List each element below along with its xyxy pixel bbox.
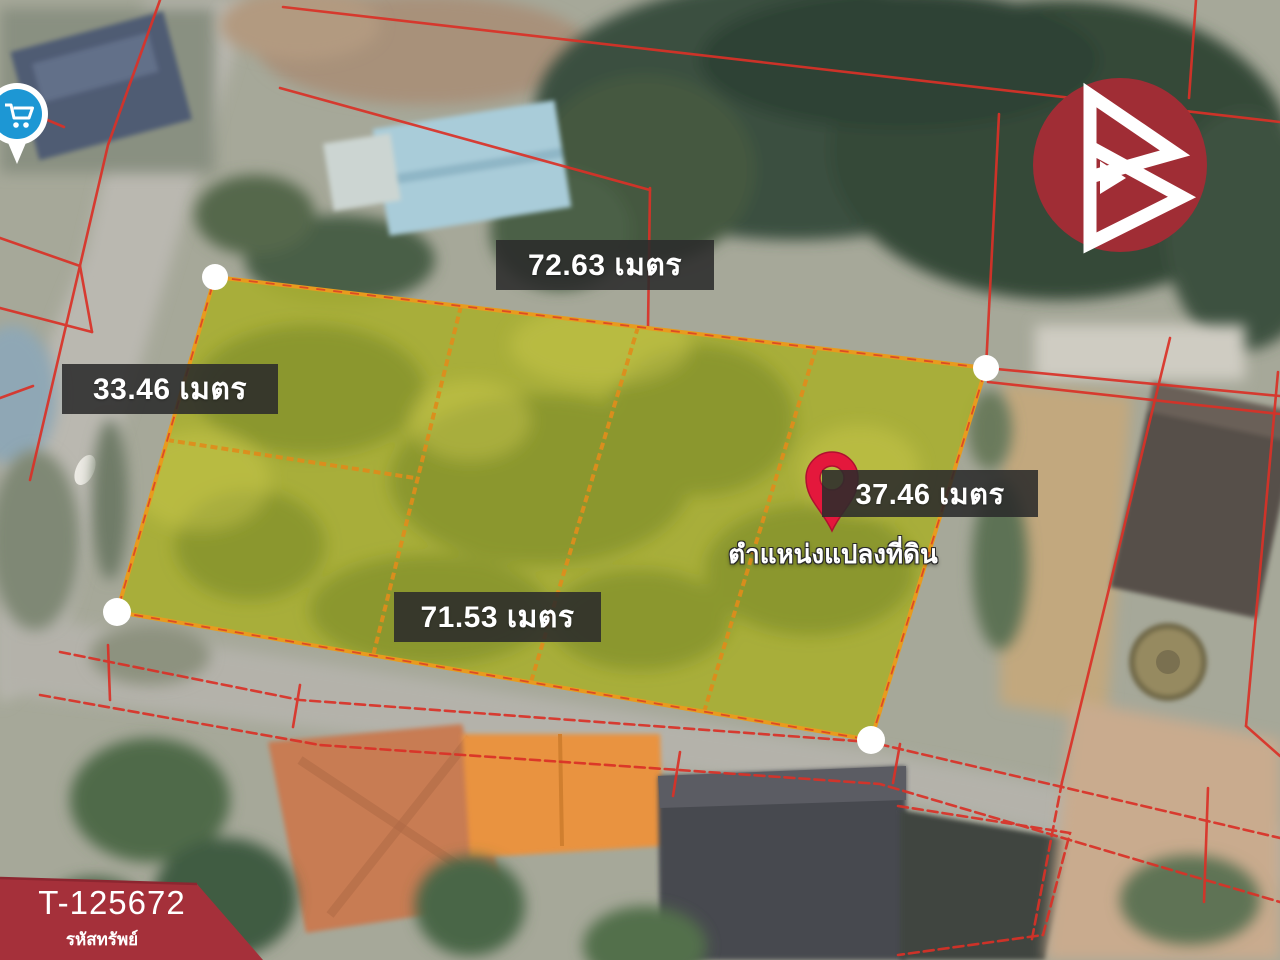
measurement-value: 72.63 เมตร xyxy=(528,242,682,289)
measurement-label-right: 37.46 เมตร xyxy=(822,470,1038,517)
measurement-value: 71.53 เมตร xyxy=(420,594,574,641)
vertex-point xyxy=(857,726,885,754)
brand-logo xyxy=(1030,75,1210,255)
vertex-point xyxy=(973,355,999,381)
measurement-label-top: 72.63 เมตร xyxy=(496,240,714,290)
property-code: T-125672 xyxy=(20,884,204,922)
property-code-caption: รหัสทรัพย์ xyxy=(20,926,184,953)
pin-caption: ตำแหน่งแปลงที่ดิน xyxy=(700,534,966,575)
measurement-value: 37.46 เมตร xyxy=(855,471,1004,517)
vertex-point xyxy=(202,264,228,290)
measurement-label-left: 33.46 เมตร xyxy=(62,364,278,414)
store-marker-icon xyxy=(0,64,67,174)
vertex-point xyxy=(103,598,131,626)
measurement-value: 33.46 เมตร xyxy=(93,366,247,413)
land-listing-image: 72.63 เมตร 33.46 เมตร 37.46 เมตร 71.53 เ… xyxy=(0,0,1280,960)
measurement-label-bottom: 71.53 เมตร xyxy=(394,592,601,642)
